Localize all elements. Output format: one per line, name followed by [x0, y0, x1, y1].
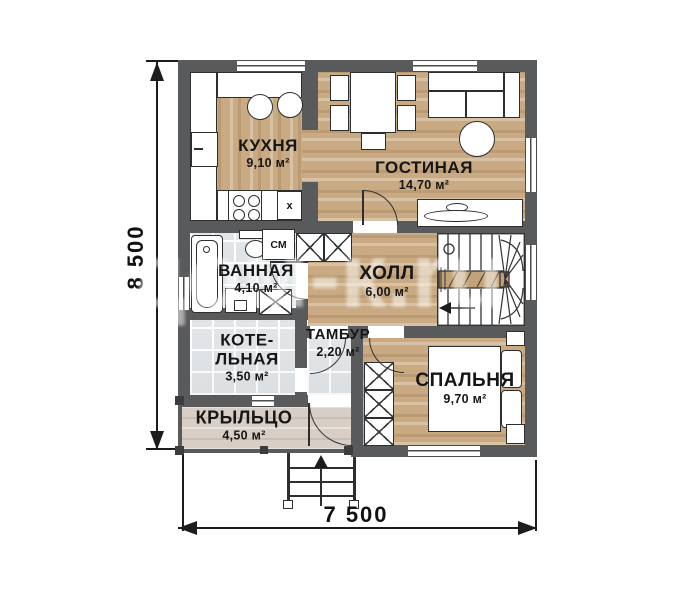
bed-pillow [501, 350, 522, 388]
window-living-top [413, 60, 477, 72]
tv-screen [424, 210, 488, 222]
steps-rail-right [353, 453, 356, 505]
wall-bedroom-bottom-b [480, 445, 537, 457]
stove-burner [248, 209, 260, 221]
hall-closet [324, 233, 352, 262]
sink-bowl [247, 94, 273, 120]
dimension-arrow-top [150, 62, 164, 81]
bathtub-drain [203, 246, 210, 253]
dimension-width-text: 7 500 [296, 502, 416, 528]
coffee-table [459, 121, 495, 157]
porch-edge-bottom [178, 449, 363, 453]
bedroom-wardrobe [364, 418, 394, 446]
window-bedroom [408, 445, 480, 457]
nightstand [506, 424, 525, 444]
sofa-armrest-line [503, 72, 505, 118]
porch-post [344, 446, 353, 455]
staircase [437, 233, 525, 326]
kitchen-cabinet-x: x [277, 191, 302, 220]
boiler-room-floor [190, 320, 295, 395]
wall-tambour-right [351, 326, 363, 457]
porch-post [175, 446, 184, 455]
porch-edge-left [178, 398, 182, 452]
stove-burner [248, 195, 260, 207]
wall-boiler-right-upper [295, 320, 307, 368]
dining-chair [397, 75, 416, 101]
wall-boiler-bottom-a [178, 395, 252, 407]
porch-post [175, 396, 184, 405]
kitchen-cabinet-label: x [286, 200, 292, 212]
dining-table [350, 72, 396, 133]
door-gap-tambour [310, 326, 348, 338]
stove-burner [233, 195, 245, 207]
washing-machine: СМ [262, 229, 295, 260]
steps-rail-left [287, 453, 290, 505]
dimension-height-text: 8 500 [123, 217, 149, 297]
steps-foot [283, 500, 293, 509]
dining-chair [330, 105, 349, 131]
extension-line [182, 455, 184, 531]
door-gap-bedroom [368, 326, 404, 338]
dimension-arrow-bottom [150, 431, 164, 450]
dimension-arrow-right [518, 521, 537, 535]
dining-chair [397, 105, 416, 131]
window-bathroom-left [178, 277, 190, 310]
sofa-cushion-line [465, 90, 467, 118]
wall-top [178, 60, 537, 72]
window-living-right [525, 138, 537, 192]
porch-post [260, 446, 268, 454]
wall-kitchen-living-stub-bottom [302, 182, 318, 233]
sofa [428, 72, 520, 118]
window-stairs-right [525, 245, 537, 300]
window-kitchen [237, 60, 305, 72]
dining-chair [330, 75, 349, 101]
bathroom-sink-basin [234, 300, 247, 311]
sink-bowl [277, 92, 303, 118]
nightstand [506, 331, 525, 346]
window-boiler [252, 395, 274, 407]
hall-closet [296, 233, 324, 262]
steps-direction-arrow [314, 455, 328, 468]
wall-boiler-bottom-b [274, 395, 308, 407]
bed-pillow [501, 390, 522, 428]
dining-chair [361, 133, 386, 150]
bed-mattress [428, 346, 501, 432]
floor-plan: x СМ [0, 0, 690, 610]
fridge-handle [194, 148, 203, 150]
washing-machine-label: СМ [270, 239, 286, 251]
wall-left [178, 60, 190, 398]
bedroom-wardrobe [364, 390, 394, 418]
dimension-line-height [156, 62, 158, 450]
stove-burner [233, 209, 245, 221]
wall-kitchen-living-stub-top [302, 72, 318, 130]
dimension-arrow-left [178, 521, 197, 535]
